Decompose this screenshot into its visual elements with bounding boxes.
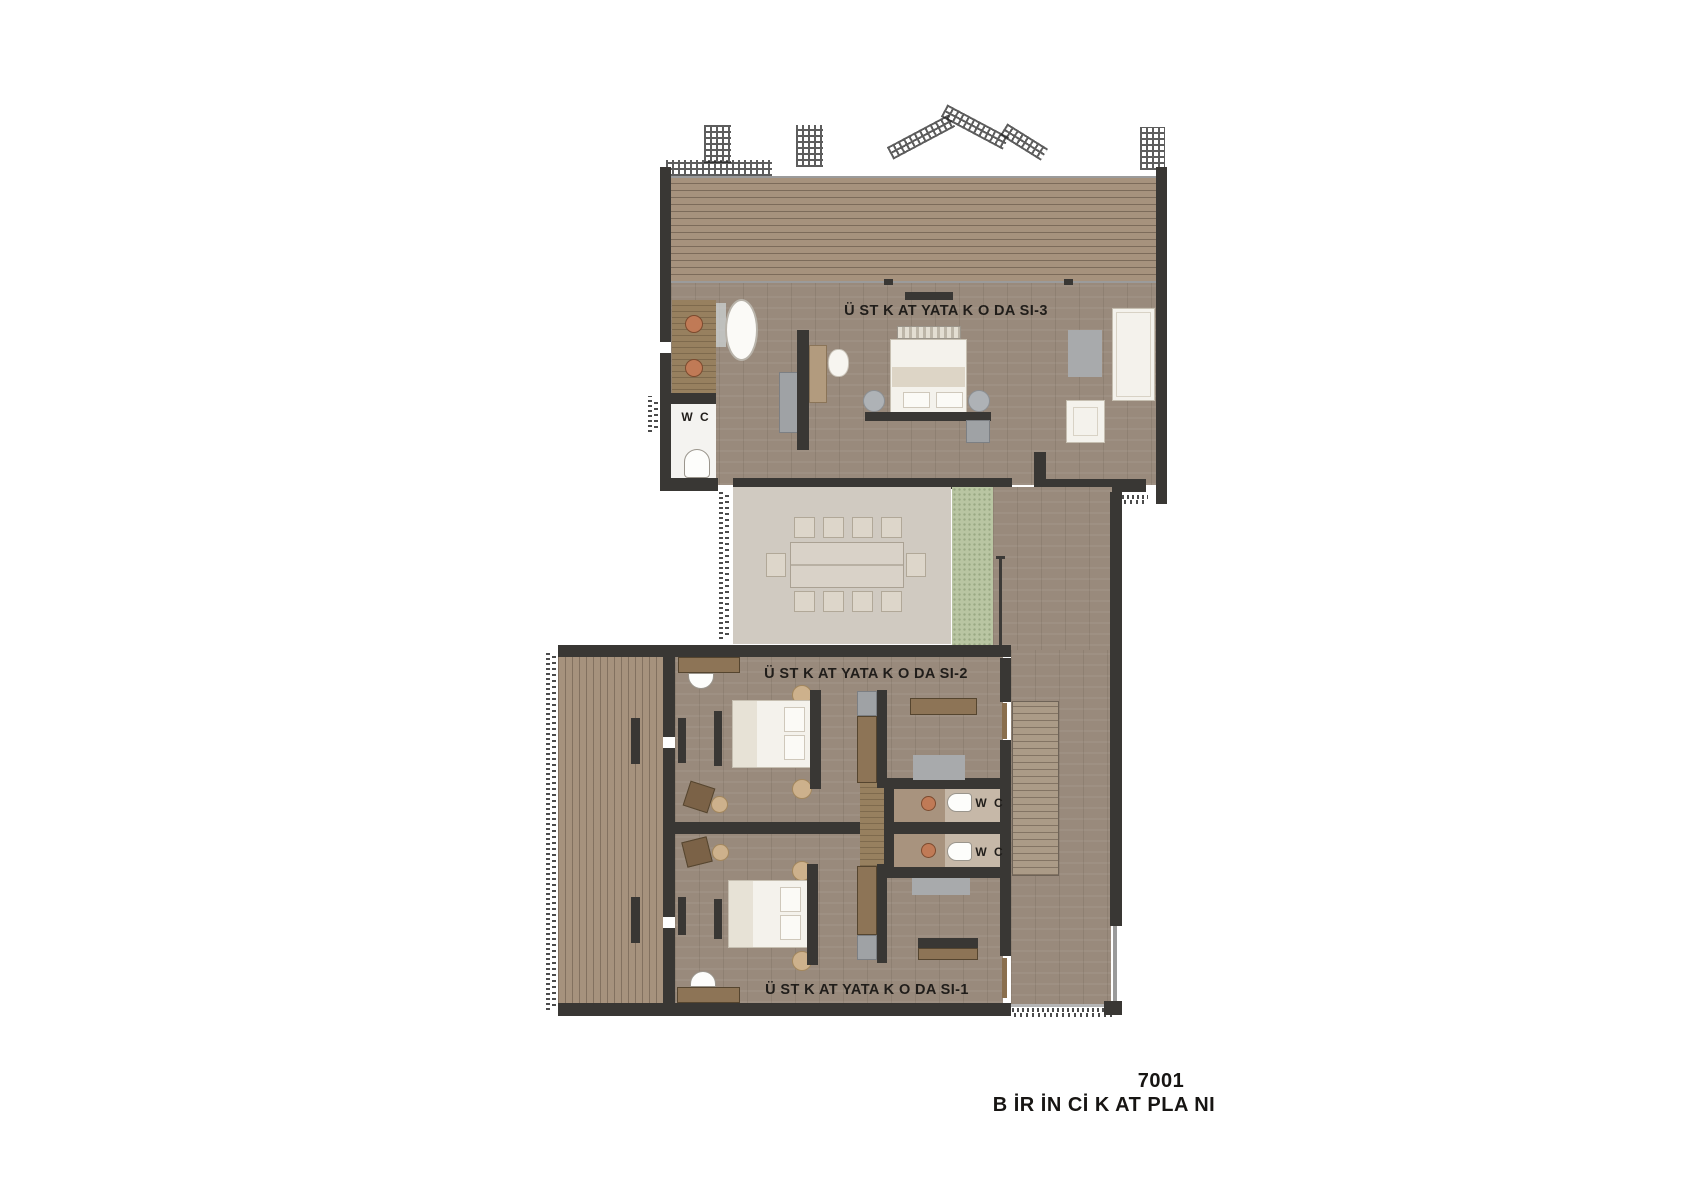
bed-blanket <box>892 367 965 387</box>
vegetation-hatch <box>1000 123 1048 160</box>
wall-segment <box>884 778 894 878</box>
side-stool <box>711 796 728 813</box>
rug <box>912 878 970 895</box>
deck-bench <box>631 718 640 764</box>
sink <box>921 796 936 811</box>
desk <box>809 345 827 403</box>
wall-segment <box>1104 1001 1122 1015</box>
bathtub <box>725 299 758 361</box>
bed-blanket <box>729 881 753 947</box>
armchair <box>1066 400 1105 443</box>
cabinet <box>857 691 877 716</box>
dining-chair <box>906 553 926 577</box>
pillow <box>780 887 801 912</box>
window-hatch <box>647 396 659 432</box>
planter-strip <box>952 487 993 648</box>
sofa <box>1112 308 1155 401</box>
sink <box>685 315 703 333</box>
pillow <box>784 735 805 760</box>
wall-segment <box>884 867 1009 878</box>
deck-edge-line <box>662 176 1160 178</box>
bed-bench <box>714 899 722 939</box>
dining-chair <box>852 591 873 612</box>
dining-chair <box>794 517 815 538</box>
window-hatch <box>718 489 731 639</box>
cabinet <box>779 372 798 433</box>
wardrobe-panel <box>877 690 887 788</box>
rug <box>913 755 965 780</box>
armchair-cushion <box>1073 407 1098 436</box>
room-label-bedroom2: Ü ST K AT YATA K O DA SI-2 <box>716 666 1016 682</box>
terrace-deck-top <box>662 178 1160 282</box>
corridor-floor <box>993 487 1112 657</box>
wall-segment <box>660 478 718 491</box>
bench <box>918 938 978 948</box>
vegetation-hatch <box>545 652 558 1010</box>
tv-console <box>905 292 953 300</box>
wardrobe <box>857 866 877 935</box>
vegetation-hatch <box>704 125 731 163</box>
room-label-wc1: W C <box>965 845 1015 859</box>
sink <box>685 359 703 377</box>
bed-bench <box>678 897 686 935</box>
pillow <box>780 915 801 940</box>
door-track-tick <box>884 279 893 285</box>
pouf <box>966 420 990 443</box>
side-stool <box>863 390 885 412</box>
bed-headboard <box>807 864 818 965</box>
pillow <box>784 707 805 732</box>
dining-chair <box>766 553 786 577</box>
bed-bench <box>714 711 722 766</box>
window-hatch <box>1012 1007 1116 1018</box>
desk-chair <box>828 349 849 377</box>
room-label-bedroom1: Ü ST K AT YATA K O DA SI-1 <box>717 982 1017 998</box>
staircase <box>1012 701 1059 876</box>
window-hatch <box>1122 494 1148 504</box>
terrace-deck-left <box>558 657 663 1004</box>
table-divider <box>791 564 903 566</box>
bed <box>732 700 813 768</box>
floor-plan: Ü ST K AT YATA K O DA SI-3 Ü ST K AT YAT… <box>0 0 1684 1190</box>
room-label-wc3: W C <box>671 410 721 424</box>
bed-headboard <box>897 326 961 339</box>
door-track-tick <box>1064 279 1073 285</box>
wall-segment <box>1110 492 1122 926</box>
dining-chair <box>881 591 902 612</box>
vegetation-hatch <box>796 125 823 167</box>
wardrobe-panel <box>877 864 887 963</box>
dining-chair <box>823 591 844 612</box>
railing <box>999 558 1002 651</box>
vegetation-hatch <box>1140 127 1165 170</box>
window-line <box>1113 926 1117 1006</box>
door-leaf <box>1002 703 1007 739</box>
rug <box>1068 330 1102 377</box>
wall-segment <box>558 645 1011 657</box>
bed <box>890 339 967 414</box>
wall-opening <box>663 917 675 928</box>
room-label-bedroom3: Ü ST K AT YATA K O DA SI-3 <box>796 303 1096 319</box>
side-stool <box>968 390 990 412</box>
toilet <box>684 449 710 478</box>
shelf <box>910 698 977 715</box>
side-stool <box>712 844 729 861</box>
vegetation-hatch <box>887 114 955 159</box>
bed-headboard <box>810 690 821 789</box>
wall-segment <box>1156 167 1167 504</box>
wall-opening <box>660 342 671 353</box>
wall-segment <box>558 1003 1011 1016</box>
sofa-cushion <box>1116 312 1151 397</box>
bed <box>728 880 809 948</box>
pillow <box>903 392 930 408</box>
side-stool <box>792 779 812 799</box>
wardrobe <box>857 716 877 783</box>
dining-chair <box>794 591 815 612</box>
bench <box>918 948 978 960</box>
room-label-wc2: W C <box>965 796 1015 810</box>
glass-facade-line <box>671 281 1157 283</box>
wall-opening <box>663 737 675 748</box>
cabinet <box>857 935 877 960</box>
wardrobe <box>797 330 809 450</box>
bath-entry-floor <box>860 778 884 878</box>
dining-chair <box>881 517 902 538</box>
wall-segment <box>660 167 671 478</box>
wall-segment <box>663 822 1011 834</box>
bed-blanket <box>733 701 757 767</box>
drawing-number: 7001 <box>1100 1070 1222 1093</box>
dining-chair <box>852 517 873 538</box>
dining-table <box>790 542 904 588</box>
dining-chair <box>823 517 844 538</box>
drawing-title: B İR İN Cİ K AT PLA NI <box>954 1094 1254 1117</box>
pillow <box>936 392 963 408</box>
sink <box>921 843 936 858</box>
bed-bench <box>678 718 686 763</box>
deck-bench <box>631 897 640 943</box>
